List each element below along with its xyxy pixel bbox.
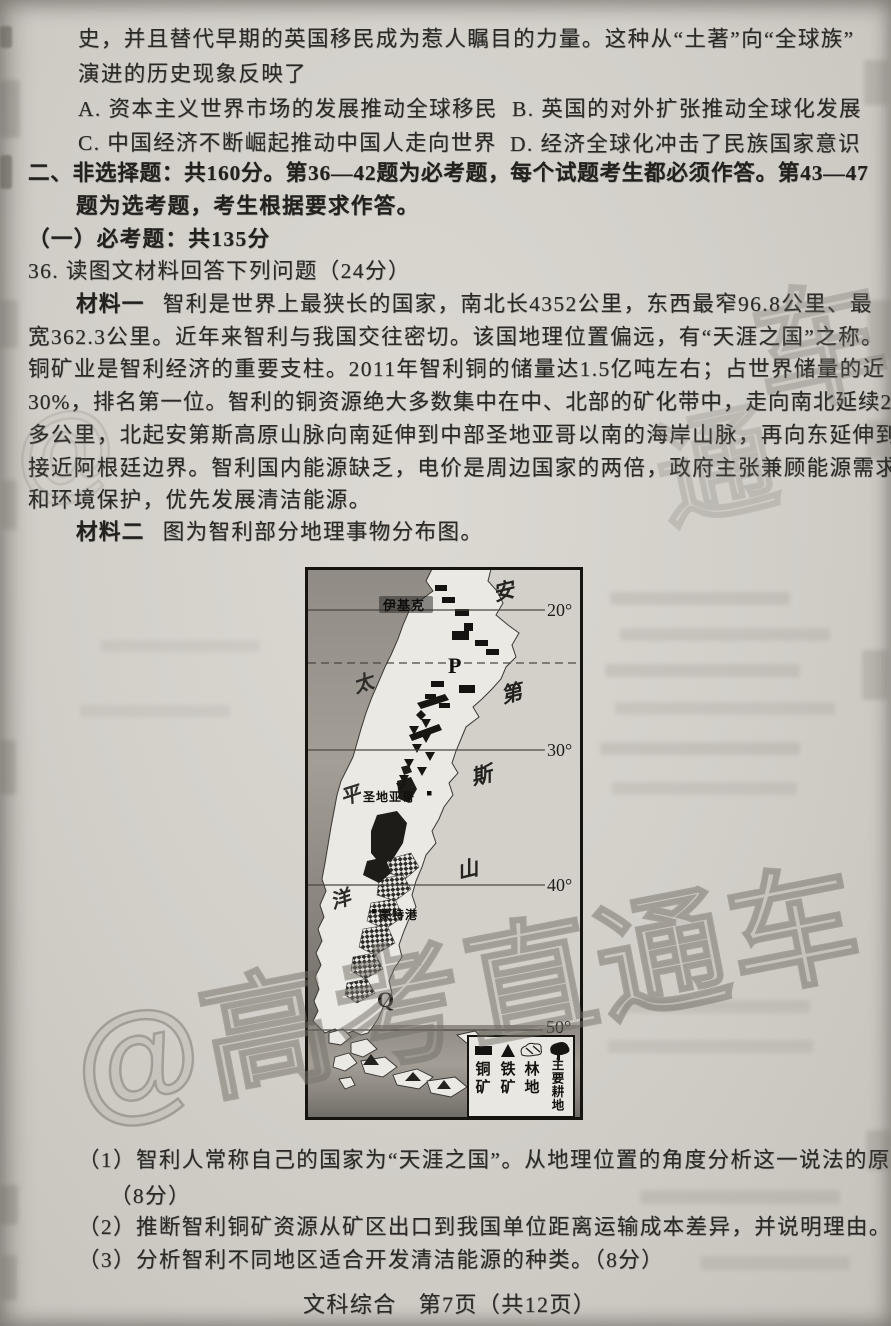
bleed-mark	[620, 1000, 810, 1013]
latitude-label-30: 30°	[547, 740, 572, 760]
history-stem-line2: 演进的历史现象反映了	[78, 61, 307, 88]
city-santiago-label: 圣地亚哥	[362, 789, 415, 804]
bleed-mark	[866, 1130, 890, 1170]
legend-copper-symbol	[475, 1046, 492, 1055]
bleed-mark	[640, 1190, 840, 1204]
bleed-mark	[700, 1256, 850, 1270]
map-legend: 铜矿 铁矿 林地 主要耕地	[468, 1036, 574, 1117]
material1-line4: 30%，排名第一位。智利的铜资源绝大多数集中在中、北部的矿化带中，走向南北延续2…	[28, 389, 891, 416]
history-option-a: A. 资本主义世界市场的发展推动全球移民	[78, 96, 498, 123]
point-p-label: P	[448, 653, 461, 678]
material1-line3: 铜矿业是智利经济的重要支柱。2011年智利铜的储量达1.5亿吨左右；占世界储量的…	[28, 356, 885, 383]
footer-subject: 文科综合	[303, 1292, 397, 1317]
city-puerto-montt: 蒙特港	[372, 907, 418, 922]
bleed-mark	[2, 480, 17, 530]
bleed-mark	[0, 26, 12, 48]
bleed-mark	[80, 705, 230, 717]
city-santiago-dot	[427, 791, 432, 796]
bleed-mark	[605, 664, 800, 677]
history-option-b: B. 英国的对外扩张推动全球化发展	[512, 96, 862, 123]
point-q-label: Q	[377, 987, 394, 1012]
q36-sub3: （3）分析智利不同地区适合开发清洁能源的种类。（8分）	[78, 1247, 664, 1274]
material1-line1: 材料一智利是世界上最狭长的国家，南北长4352公里，东西最窄96.8公里、最	[76, 291, 873, 318]
q36-sub1-line2: （8分）	[110, 1183, 191, 1210]
city-iquique: 伊基克	[379, 596, 433, 613]
required-part-heading: （一）必考题：共135分	[28, 226, 271, 253]
bleed-mark	[0, 80, 20, 138]
exam-page: 史，并且替代早期的英国移民成为惹人瞩目的力量。这种从“土著”向“全球族” 演进的…	[0, 0, 891, 1326]
bleed-mark	[868, 300, 890, 360]
history-stem-line1: 史，并且替代早期的英国移民成为惹人瞩目的力量。这种从“土著”向“全球族”	[78, 26, 855, 53]
material1-line5: 多公里，北起安第斯高原山脉向南延伸到中部圣地亚哥以南的海岸山脉，再向东延伸到	[28, 422, 891, 449]
city-iquique-label: 伊基克	[382, 598, 425, 613]
bleed-mark	[0, 1185, 18, 1225]
bleed-mark	[0, 155, 12, 189]
material2-line: 材料二图为智利部分地理事物分布图。	[76, 519, 483, 546]
q36-sub1-line1: （1）智利人常称自己的国家为“天涯之国”。从地理位置的角度分析这一说法的原因。	[78, 1147, 891, 1174]
legend-farmland-label: 主要耕地	[552, 1057, 565, 1113]
bleed-mark	[100, 640, 260, 652]
history-option-c: C. 中国经济不断崛起推动中国人走向世界	[78, 130, 497, 157]
material1-line7: 和环境保护，优先发展清洁能源。	[28, 487, 372, 514]
chile-map: 20° 30° 40° 50° 太 平 洋 安 第 斯 山 伊基克 圣地亚哥	[305, 567, 583, 1120]
bleed-mark	[2, 1255, 17, 1300]
footer-page-number: 第7页（共12页）	[419, 1292, 597, 1317]
page-footer: 文科综合第7页（共12页）	[303, 1291, 596, 1319]
history-option-d: D. 经济全球化冲击了民族国家意识	[510, 131, 861, 158]
bleed-mark	[862, 650, 888, 700]
latitude-label-20: 20°	[547, 600, 572, 620]
bleed-mark	[864, 60, 888, 105]
latitude-label-40: 40°	[547, 875, 572, 895]
material1-line6: 接近阿根廷边界。智利国内能源缺乏，电价是周边国家的两倍，政府主张兼顾能源需求	[28, 455, 891, 482]
bleed-mark	[608, 1040, 813, 1053]
q36-sub2: （2）推断智利铜矿资源从矿区出口到我国单位距离运输成本差异，并说明理由。（8分）	[78, 1214, 891, 1241]
bleed-mark	[0, 740, 16, 795]
q36-title: 36. 读图文材料回答下列问题（24分）	[28, 258, 411, 285]
latitude-label-50: 50°	[546, 1017, 571, 1037]
bleed-mark	[0, 300, 18, 348]
bleed-mark	[610, 592, 790, 605]
material1-line2: 宽362.3公里。近年来智利与我国交往密切。该国地理位置偏远，有“天涯之国”之称…	[28, 324, 884, 351]
city-puerto-montt-dot	[372, 909, 377, 914]
bleed-mark	[615, 702, 835, 715]
bleed-mark	[620, 628, 830, 641]
material1-label: 材料一	[76, 292, 145, 316]
bleed-mark	[600, 742, 800, 755]
section2-heading-line2: 题为选考题，考生根据要求作答。	[76, 193, 420, 220]
city-puerto-montt-label: 蒙特港	[379, 907, 418, 922]
bleed-mark	[866, 420, 890, 460]
material2-label: 材料二	[76, 520, 145, 544]
bleed-mark	[612, 782, 797, 795]
section2-heading-line1: 二、非选择题：共160分。第36—42题为必考题，每个试题考生都必须作答。第43…	[28, 160, 869, 187]
